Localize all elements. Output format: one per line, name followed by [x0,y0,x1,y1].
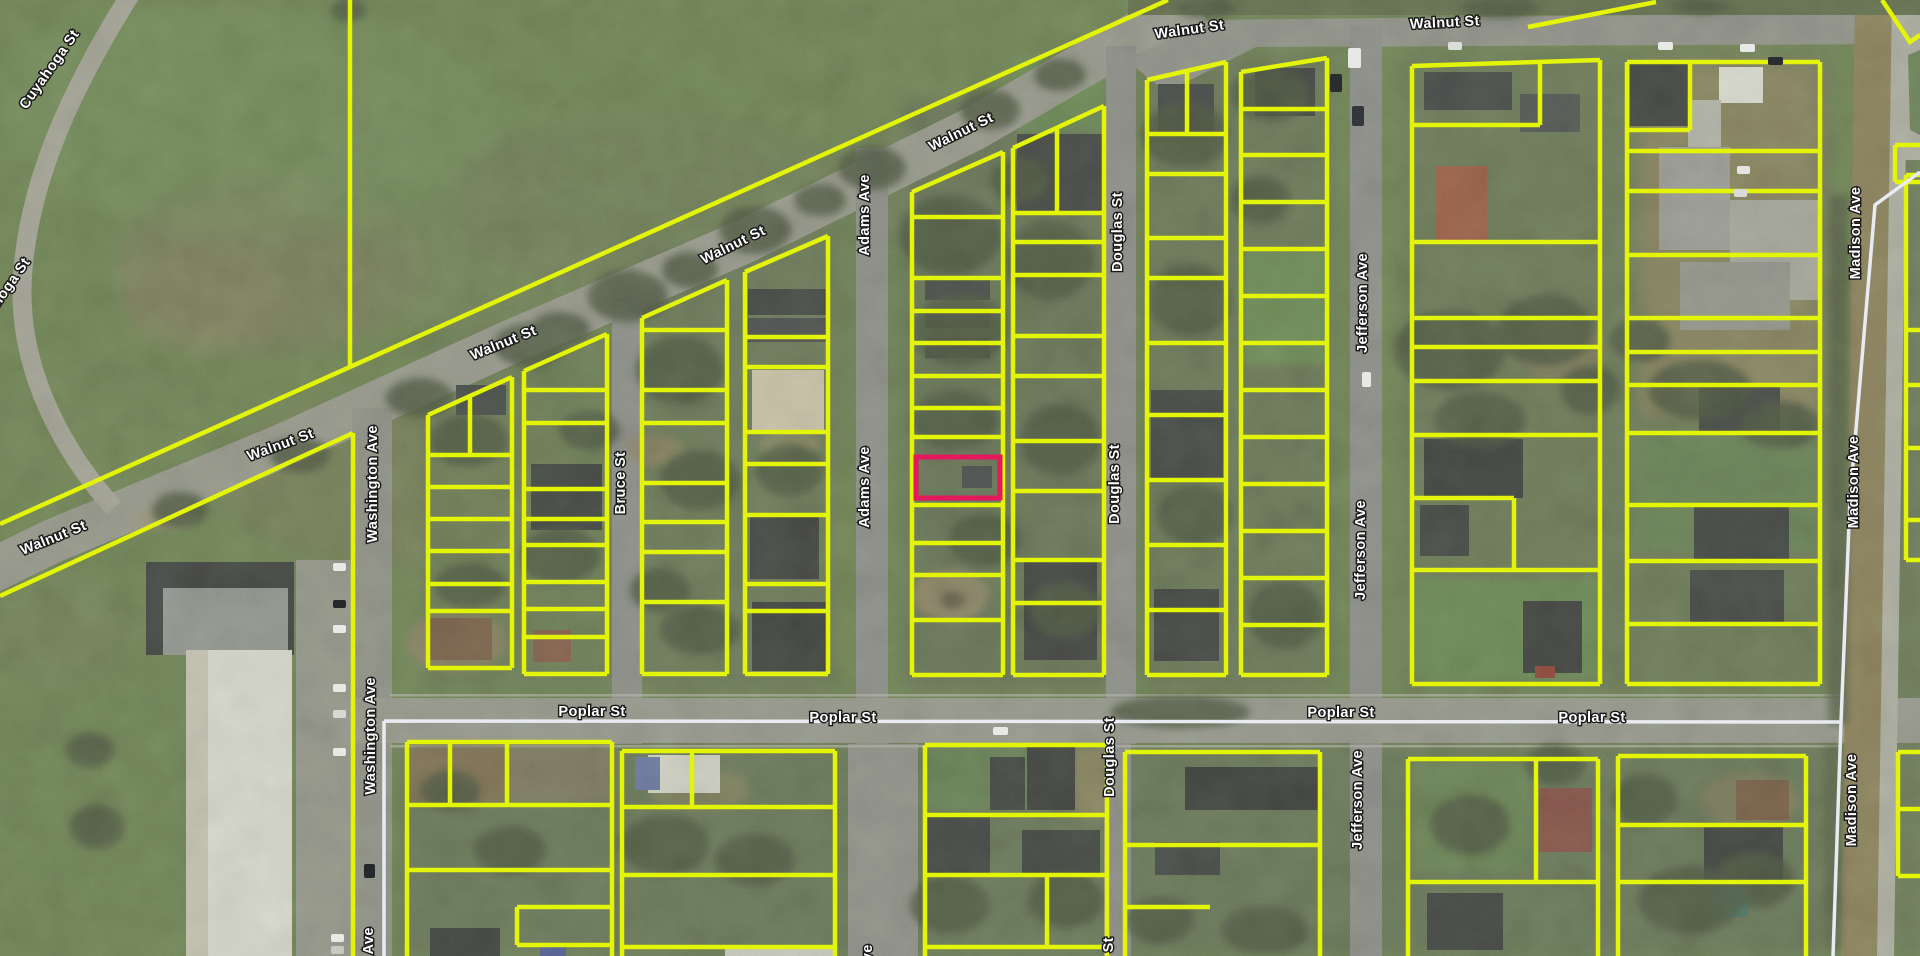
svg-text:Jefferson Ave: Jefferson Ave [1353,500,1369,600]
svg-text:Washington Ave: Washington Ave [365,425,381,543]
svg-text:Madison Ave: Madison Ave [1848,187,1864,280]
svg-text:Adams Ave: Adams Ave [857,174,873,256]
svg-text:Douglas St: Douglas St [1102,717,1118,797]
svg-text:Douglas St: Douglas St [1101,937,1117,956]
svg-text:Poplar St: Poplar St [809,710,876,726]
svg-text:Jefferson Ave: Jefferson Ave [1350,750,1366,850]
svg-text:Poplar St: Poplar St [558,704,625,720]
svg-text:Washington Ave: Washington Ave [361,927,377,956]
svg-text:Douglas St: Douglas St [1107,444,1123,524]
svg-text:Poplar St: Poplar St [1558,710,1625,726]
svg-text:Madison Ave: Madison Ave [1846,436,1862,529]
svg-text:Adams Ave: Adams Ave [857,446,873,528]
svg-text:Jefferson Ave: Jefferson Ave [1355,253,1371,353]
svg-text:Adams Ave: Adams Ave [860,944,876,956]
svg-text:Bruce St: Bruce St [613,452,629,515]
svg-text:Washington Ave: Washington Ave [363,677,379,795]
svg-text:Poplar St: Poplar St [1307,705,1374,721]
svg-text:Douglas St: Douglas St [1110,192,1126,272]
svg-text:Madison Ave: Madison Ave [1844,754,1860,847]
